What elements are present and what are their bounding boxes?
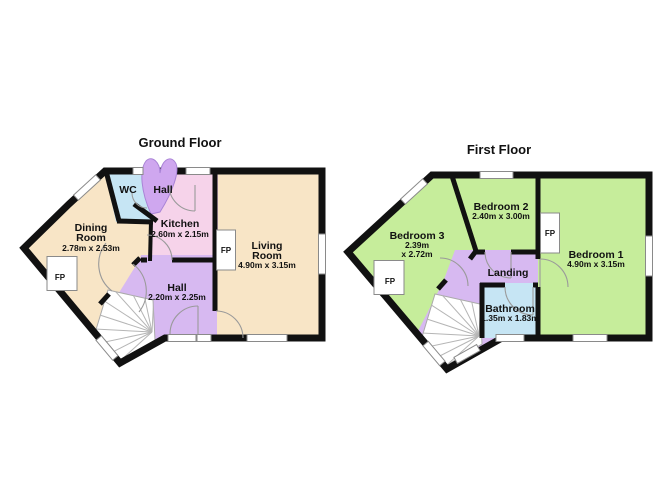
ground-floor-title: Ground Floor — [138, 135, 221, 150]
floorplan-svg: Ground Floor WC Hall Kitchen 2.60m x 2.1… — [0, 0, 668, 486]
kitchen-dims: 2.60m x 2.15m — [151, 229, 209, 239]
front-door — [168, 335, 196, 342]
hall-dims: 2.20m x 2.25m — [148, 292, 206, 302]
first-floor-title: First Floor — [467, 142, 531, 157]
fp-bedroom1-label: FP — [545, 229, 556, 238]
living-dims: 4.90m x 3.15m — [238, 260, 296, 270]
landing-label: Landing — [488, 267, 529, 279]
bedroom1-dims: 4.90m x 3.15m — [567, 259, 625, 269]
floorplan-canvas: Ground Floor WC Hall Kitchen 2.60m x 2.1… — [0, 0, 668, 486]
ground-floor-plan: Ground Floor WC Hall Kitchen 2.60m x 2.1… — [24, 135, 326, 376]
bedroom2-dims: 2.40m x 3.00m — [472, 211, 530, 221]
bedroom3-dims2: x 2.72m — [401, 249, 433, 259]
fp-living-label: FP — [221, 246, 232, 255]
first-floor-plan: First Floor Bedroom 2 2.40m x 3.00m Bedr… — [348, 142, 653, 380]
wc-label: WC — [119, 184, 137, 196]
fp-bedroom3-label: FP — [385, 277, 396, 286]
bathroom-dims: 1.35m x 1.83m — [481, 313, 539, 323]
fp-dining-label: FP — [55, 273, 66, 282]
dining-dims: 2.78m x 2.53m — [62, 243, 120, 253]
entrance-hall-label: Hall — [153, 184, 172, 196]
